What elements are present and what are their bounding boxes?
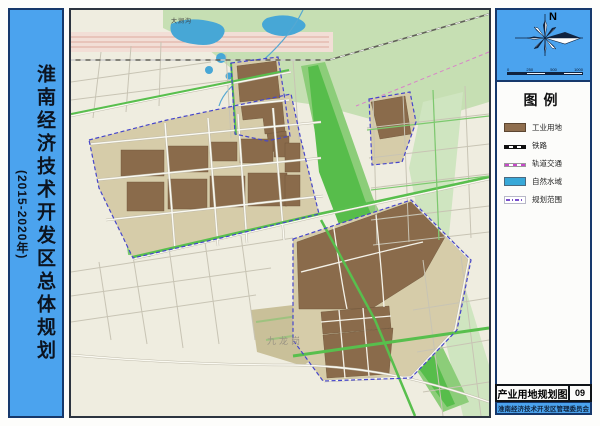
map-canvas: 大涧沟 九龙岗	[69, 8, 491, 418]
scale-tick: 250	[526, 67, 533, 72]
sheet-title: 产业用地规划图	[495, 384, 570, 402]
boundary-line-icon	[504, 196, 526, 204]
left-title-panel: 淮南经济技术开发区总体规划 (2015-2020年)	[8, 8, 64, 418]
plan-title-year: (2015-2020年)	[14, 170, 31, 259]
legend-label: 规划范围	[532, 194, 562, 205]
legend-panel: 图例 工业用地 铁路 轨道交通 自然水域 规划范围	[495, 80, 592, 386]
land-use-map-svg: 大涧沟 九龙岗	[71, 10, 489, 416]
railway-line-icon	[504, 145, 526, 149]
scale-bar-segments	[507, 72, 583, 75]
scale-tick: 0	[507, 67, 509, 72]
legend-title: 图例	[504, 90, 583, 110]
planning-map-sheet: 淮南经济技术开发区总体规划 (2015-2020年)	[0, 0, 600, 426]
legend-label: 工业用地	[532, 122, 562, 133]
compass-panel: N 0 250 500 1000	[495, 8, 592, 82]
legend-item-water: 自然水域	[504, 176, 583, 187]
water-swatch-icon	[504, 177, 526, 186]
agency-name: 淮南经济技术开发区管理委员会	[495, 401, 592, 415]
scale-bar: 0 250 500 1000	[507, 67, 583, 75]
district-label: 九龙岗	[267, 335, 303, 346]
legend-item-railway: 铁路	[504, 140, 583, 151]
legend-label: 自然水域	[532, 176, 562, 187]
legend-label: 轨道交通	[532, 158, 562, 169]
legend-item-boundary: 规划范围	[504, 194, 583, 205]
transit-line-icon	[504, 163, 526, 167]
title-block: 产业用地规划图 09	[495, 384, 592, 402]
sheet-number: 09	[568, 384, 592, 402]
plan-title-vertical: 淮南经济技术开发区总体规划 (2015-2020年)	[14, 18, 58, 408]
plan-title-text: 淮南经济技术开发区总体规划	[31, 64, 58, 363]
legend-item-transit: 轨道交通	[504, 158, 583, 169]
industrial-swatch-icon	[504, 123, 526, 132]
legend-item-industrial: 工业用地	[504, 122, 583, 133]
scale-tick: 1000	[574, 67, 583, 72]
compass-rose-icon	[501, 12, 590, 58]
river-label: 大涧沟	[171, 17, 192, 25]
scale-tick: 500	[550, 67, 557, 72]
map-marginalia-column: N 0 250 500 1000	[495, 8, 592, 418]
legend-label: 铁路	[532, 140, 547, 151]
